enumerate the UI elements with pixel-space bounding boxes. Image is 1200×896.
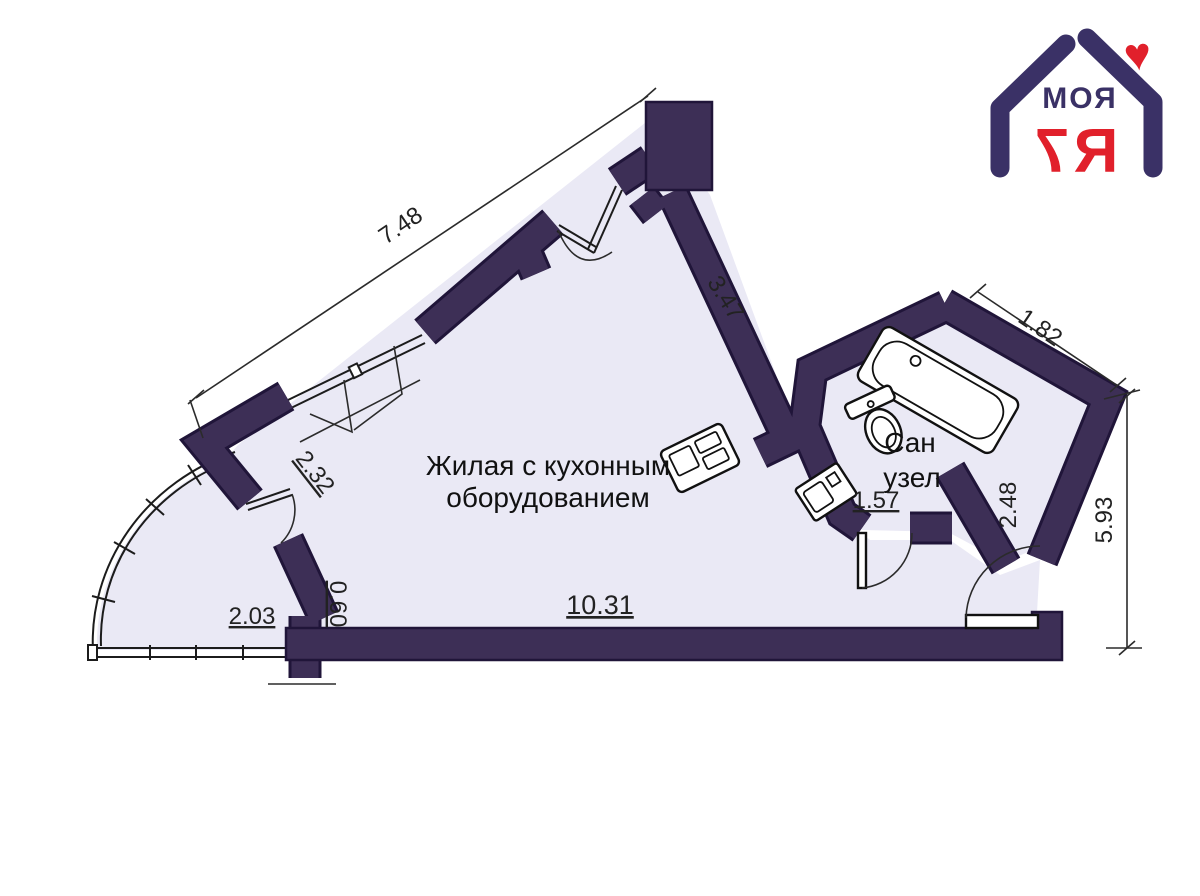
logo-heart-icon: ♥	[1121, 27, 1154, 82]
logo-letter-ya: Я	[1074, 117, 1119, 186]
floor-plan: 7.48 3.47 1.82 5.93 2.48 1.57 2.32 0.60 …	[0, 0, 1200, 896]
apex-wall-block	[646, 102, 712, 190]
dim-hall-nook: 2.48	[995, 482, 1022, 529]
bathroom-label-line2: узел	[883, 462, 941, 493]
dim-balcony-width: 2.03	[229, 603, 276, 630]
dim-wall-stub: 0.60	[324, 581, 351, 628]
balcony-bottom-glazing	[88, 645, 305, 660]
dim-bottom-wall: 10.31	[566, 590, 634, 620]
floor-plan-page: 7.48 3.47 1.82 5.93 2.48 1.57 2.32 0.60 …	[0, 0, 1200, 896]
logo-digit-seven: 7	[1035, 117, 1069, 186]
entrance-door-leaf	[966, 615, 1038, 628]
logo: ♥ МОЯ 7 Я	[1000, 27, 1154, 186]
dim-top-wall: 7.48	[374, 202, 428, 251]
living-room-label-line1: Жилая с кухонным	[426, 450, 670, 481]
bathroom-label-line1: Сан	[884, 427, 936, 458]
dim-right-side: 5.93	[1091, 497, 1118, 544]
bathroom-door-leaf	[858, 533, 866, 588]
living-room-label-line2: оборудованием	[446, 482, 649, 513]
logo-word: МОЯ	[1042, 82, 1118, 115]
